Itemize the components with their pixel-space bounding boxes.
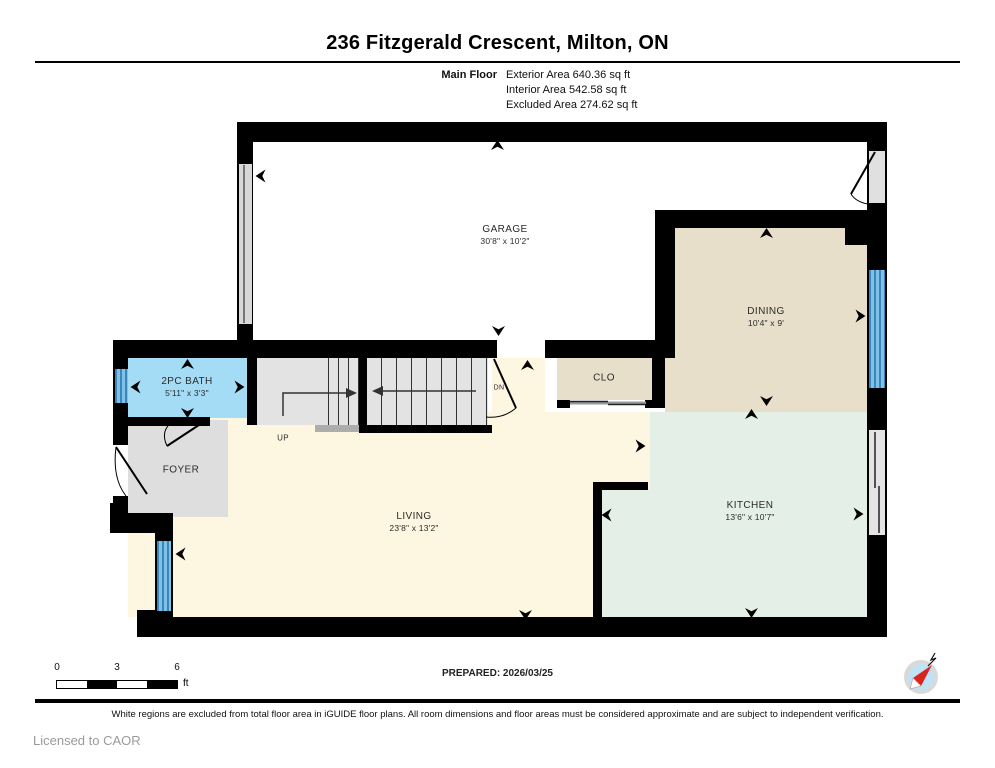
foyer-name: FOYER [163,464,199,477]
stairs-up-treads [319,358,359,425]
kitchen-label: KITCHEN 13'6" x 10'7" [725,499,774,523]
floorplan-page: 236 Fitzgerald Crescent, Milton, ON Main… [0,0,995,768]
wall-closet-bottom-left [557,400,570,408]
living-name: LIVING [389,510,438,523]
wall-kitchen-vertical [593,482,602,617]
scale-seg-white [57,681,87,688]
wall-foyer-bottom [110,513,173,533]
stair-landing [257,358,319,425]
wall-mid-band-left [113,340,497,358]
stairs-up-label: UP [277,434,289,443]
wall-dining-top [655,210,887,228]
scale-seg-black [87,681,117,688]
stairs-down-treads [367,358,488,425]
stair-threshold [315,425,359,432]
wall-stair-mid [359,358,367,433]
wall-bath-right [247,358,257,425]
garage-dims: 30'8" x 10'2" [480,236,529,247]
kitchen-floor-upper [650,412,867,490]
dining-dims: 10'4" x 9' [747,318,784,329]
garage-name: GARAGE [480,223,529,236]
scale-seg-black [147,681,177,688]
garage-side-door-opening [869,151,885,203]
garage-door [239,164,252,324]
foyer-label: FOYER [163,464,199,477]
living-window [157,540,171,612]
floor-label: Main Floor [434,69,497,81]
closet-label: CLO [593,372,615,385]
scale-bar-track [56,680,178,689]
bath-dims: 5'11" x 3'3" [161,388,212,399]
dining-floor-sliver [665,358,675,412]
wall-stair-bottom [359,425,492,433]
exterior-area: Exterior Area 640.36 sq ft [506,69,630,81]
excluded-area: Excluded Area 274.62 sq ft [506,99,637,111]
wall-dining-left [655,210,675,358]
scale-seg-white [117,681,147,688]
bath-label: 2PC BATH 5'11" x 3'3" [161,375,212,399]
bath-name: 2PC BATH [161,375,212,388]
stairs-down-label: DN [494,385,505,392]
kitchen-name: KITCHEN [725,499,774,512]
garage-label: GARAGE 30'8" x 10'2" [480,223,529,247]
scale-unit: ft [183,678,189,689]
dining-window [869,270,885,388]
wall-dining-notch [845,228,867,245]
dining-name: DINING [747,305,784,318]
wall-kitchen-jog [593,482,648,490]
wall-bath-bottom [128,417,210,426]
prepared-date: PREPARED: 2026/03/25 [0,668,995,679]
wall-top [237,122,887,142]
bath-window [115,368,128,404]
closet-name: CLO [593,372,615,385]
closet-slider-line [570,402,646,405]
kitchen-sliding-door [869,430,885,535]
dining-label: DINING 10'4" x 9' [747,305,784,329]
footer-divider [35,699,960,703]
wall-closet-bottom-right [645,400,658,408]
header-divider [35,61,960,63]
disclaimer-text: White regions are excluded from total fl… [35,709,960,720]
license-text: Licensed to CAOR [33,733,141,748]
wall-bottom [155,617,887,637]
kitchen-dims: 13'6" x 10'7" [725,512,774,523]
page-title: 236 Fitzgerald Crescent, Milton, ON [0,32,995,55]
living-dims: 23'8" x 13'2" [389,523,438,534]
interior-area: Interior Area 542.58 sq ft [506,84,626,96]
living-label: LIVING 23'8" x 13'2" [389,510,438,534]
